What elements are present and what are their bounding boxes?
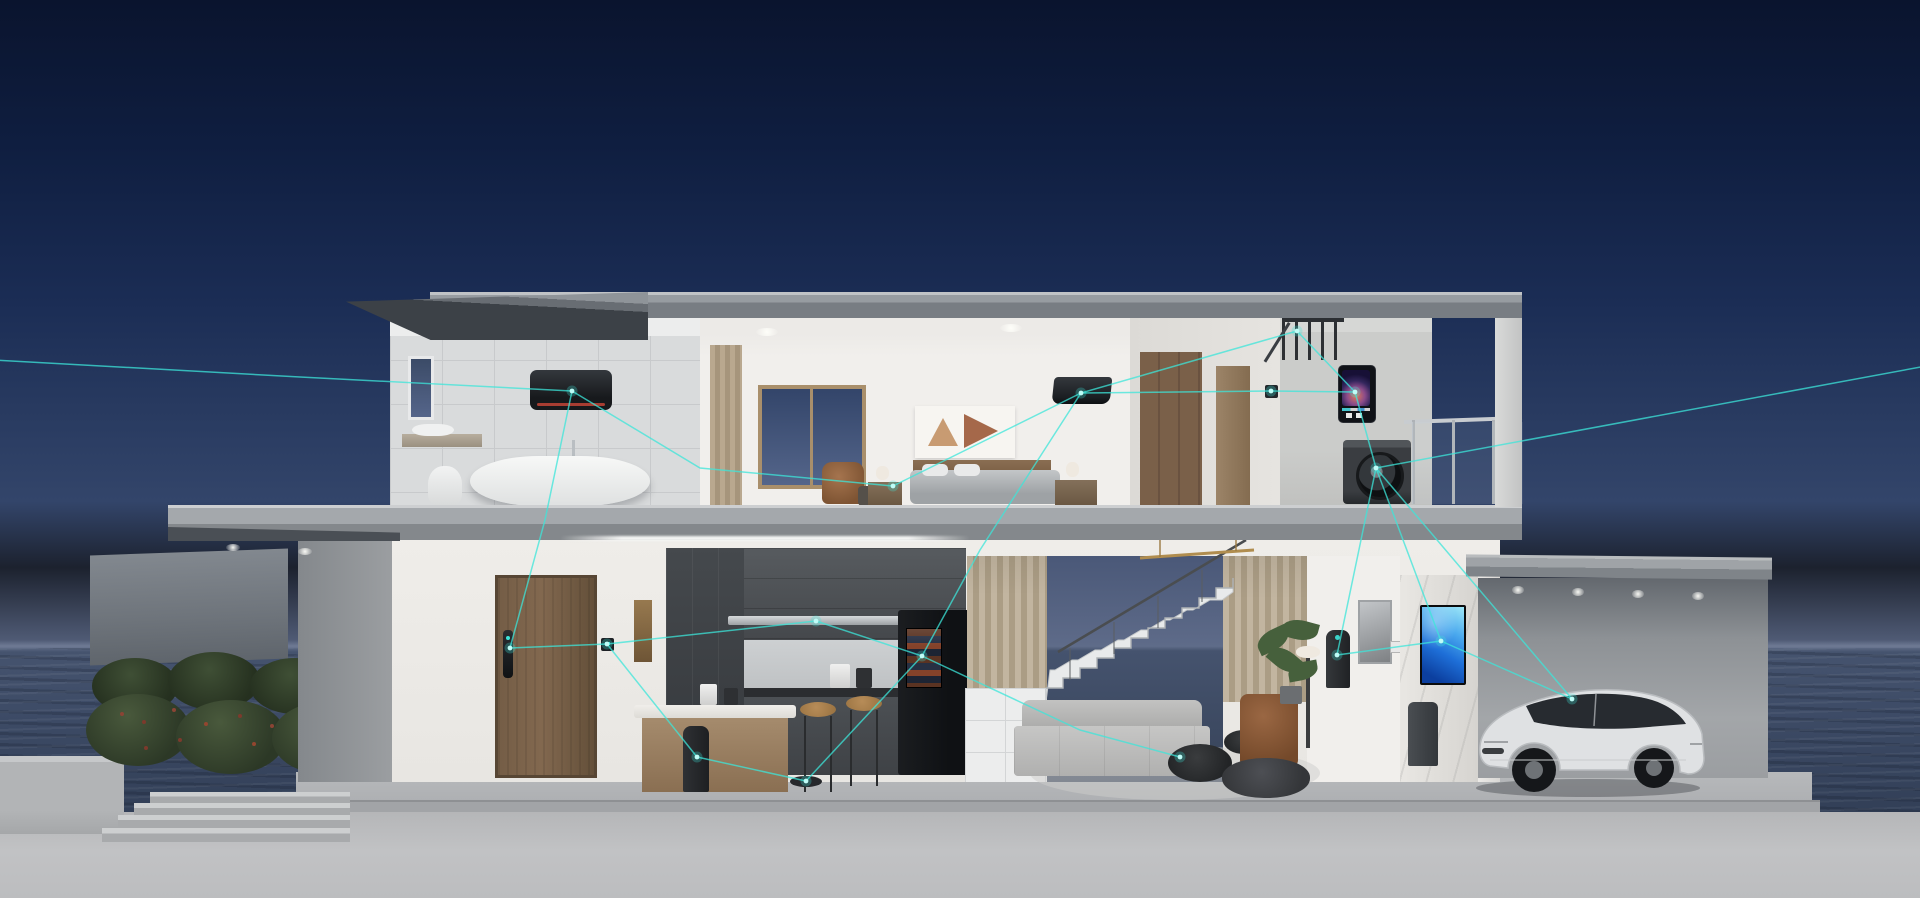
bar-stool [800, 702, 836, 717]
coffee-machine [830, 664, 850, 688]
bathtub [470, 456, 650, 506]
nightstand [1055, 480, 1097, 506]
yard-step [134, 803, 350, 815]
kettle [700, 684, 717, 705]
ceiling-light [756, 328, 778, 336]
bathroom-vanity [402, 434, 482, 447]
plant-pot [1280, 686, 1302, 704]
cove-light [560, 536, 970, 541]
entry-control-panel [601, 638, 614, 651]
bedside-lamp [1066, 462, 1079, 477]
robot-vacuum [790, 776, 822, 787]
suv-car [1468, 642, 1712, 802]
air-purifier [1326, 630, 1350, 688]
trash-bin [1408, 702, 1438, 766]
berry-accents [120, 712, 124, 716]
window-mullion [810, 389, 813, 485]
garage-downlight [1692, 592, 1704, 600]
porch-side-wall [298, 540, 392, 782]
water-heater-strip [1342, 408, 1370, 411]
bean-bag [1222, 758, 1310, 798]
privacy-wall [90, 549, 288, 666]
bedroom-curtain [710, 345, 742, 505]
ceiling-drying-rack [1282, 318, 1344, 360]
bedroom-air-conditioner [1052, 377, 1113, 404]
wall-art-frame [1358, 600, 1392, 664]
hedge-bush [176, 700, 286, 774]
nightstand [868, 482, 902, 506]
garage-downlight [1632, 590, 1644, 598]
floor-lamp-shade [1296, 646, 1320, 658]
wall-tv [1420, 605, 1466, 685]
tv-screen [1422, 607, 1464, 683]
fridge-display [906, 628, 942, 688]
yard-step [150, 792, 350, 803]
bathroom-water-heater [530, 370, 612, 410]
hall-thermostat [1265, 385, 1278, 398]
bar-stool [846, 696, 882, 711]
hedge-bush [86, 694, 190, 766]
hallway-door [1216, 366, 1250, 507]
island-countertop [634, 705, 796, 718]
garage-downlight [1512, 586, 1524, 594]
ceiling-light [1000, 324, 1022, 332]
water-heater-screen [1342, 370, 1370, 406]
garage-downlight [1572, 588, 1584, 596]
slat-curtain-left [967, 556, 1047, 688]
yard-step [102, 828, 350, 842]
water-heater-knobs [1346, 413, 1362, 418]
living-back-wall [1307, 556, 1400, 782]
bathroom-window [408, 356, 434, 420]
smart-speaker-tower [683, 726, 709, 792]
rice-cooker [724, 688, 738, 705]
pillow [954, 464, 980, 476]
smart-door-lock [503, 630, 513, 678]
washbasin [412, 424, 454, 436]
yard-step [118, 815, 350, 828]
pillow [922, 464, 948, 476]
range-hood [728, 616, 906, 625]
toilet [428, 466, 462, 506]
bar-stool-legs [850, 710, 878, 786]
leather-armchair [1240, 694, 1298, 768]
wardrobe [1140, 352, 1202, 507]
planter-wall [0, 756, 124, 834]
bedside-lamp [876, 466, 889, 480]
upper-right-wall [1495, 316, 1522, 507]
toaster-oven [856, 668, 872, 688]
porch-downlight [226, 544, 240, 551]
kitchen-island [642, 718, 788, 792]
porch-downlight [298, 548, 312, 555]
washer-door [1356, 452, 1404, 500]
smart-home-cutaway-scene [0, 0, 1920, 898]
entry-wall-art [634, 600, 652, 662]
garage-roof [1466, 554, 1772, 579]
